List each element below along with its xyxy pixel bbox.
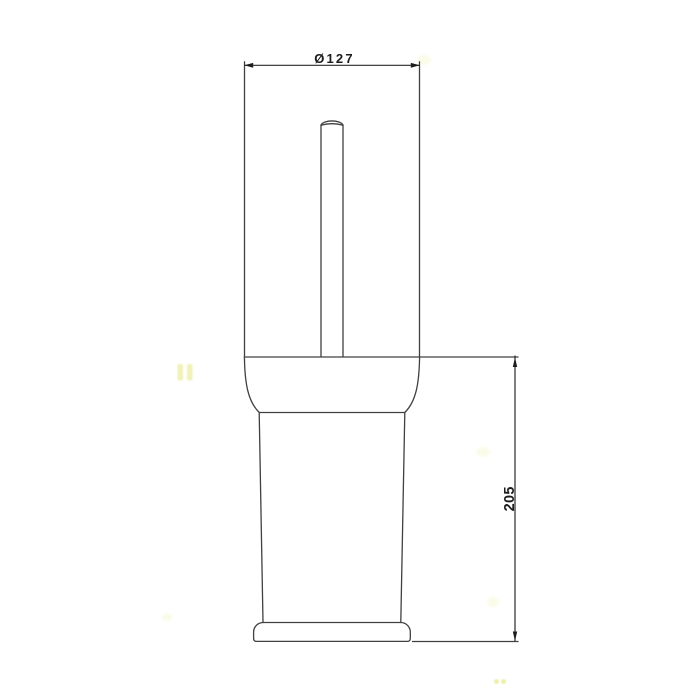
- svg-text:205: 205: [502, 486, 518, 511]
- svg-text:Ø127: Ø127: [314, 51, 355, 66]
